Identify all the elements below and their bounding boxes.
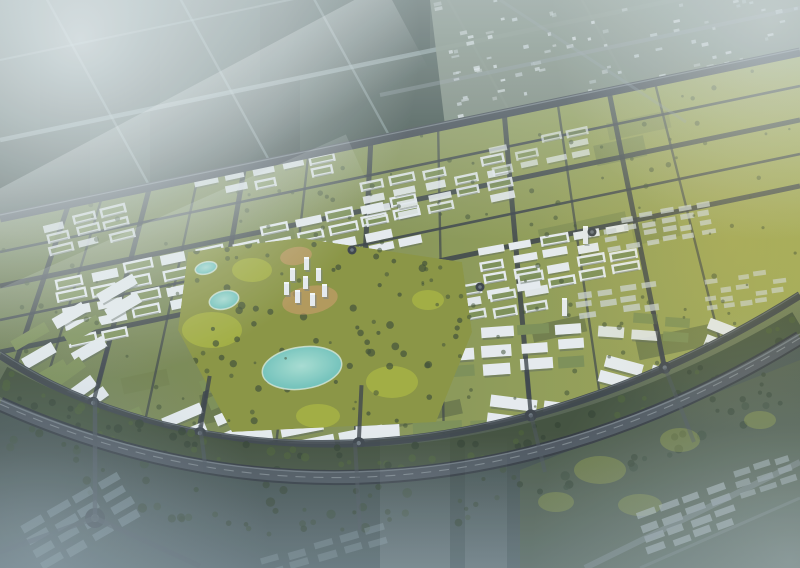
- haze-tint: [0, 0, 800, 568]
- aerial-city-rendering: [0, 0, 800, 568]
- fog-overlay: [0, 0, 800, 568]
- rendering-canvas: [0, 0, 800, 568]
